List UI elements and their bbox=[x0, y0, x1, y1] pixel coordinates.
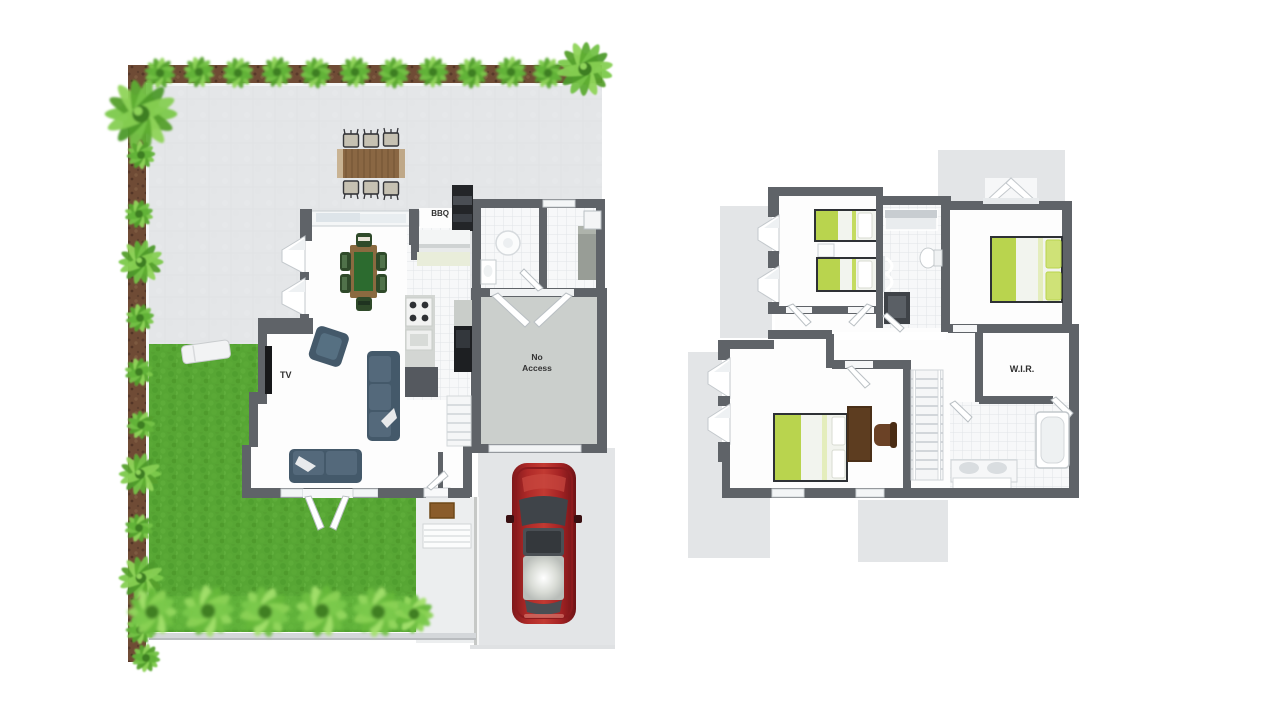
svg-text:No: No bbox=[531, 352, 542, 362]
svg-text:TV: TV bbox=[280, 370, 292, 380]
svg-text:BBQ: BBQ bbox=[431, 209, 449, 218]
svg-text:Access: Access bbox=[522, 363, 552, 373]
svg-text:W.I.R.: W.I.R. bbox=[1010, 364, 1035, 374]
